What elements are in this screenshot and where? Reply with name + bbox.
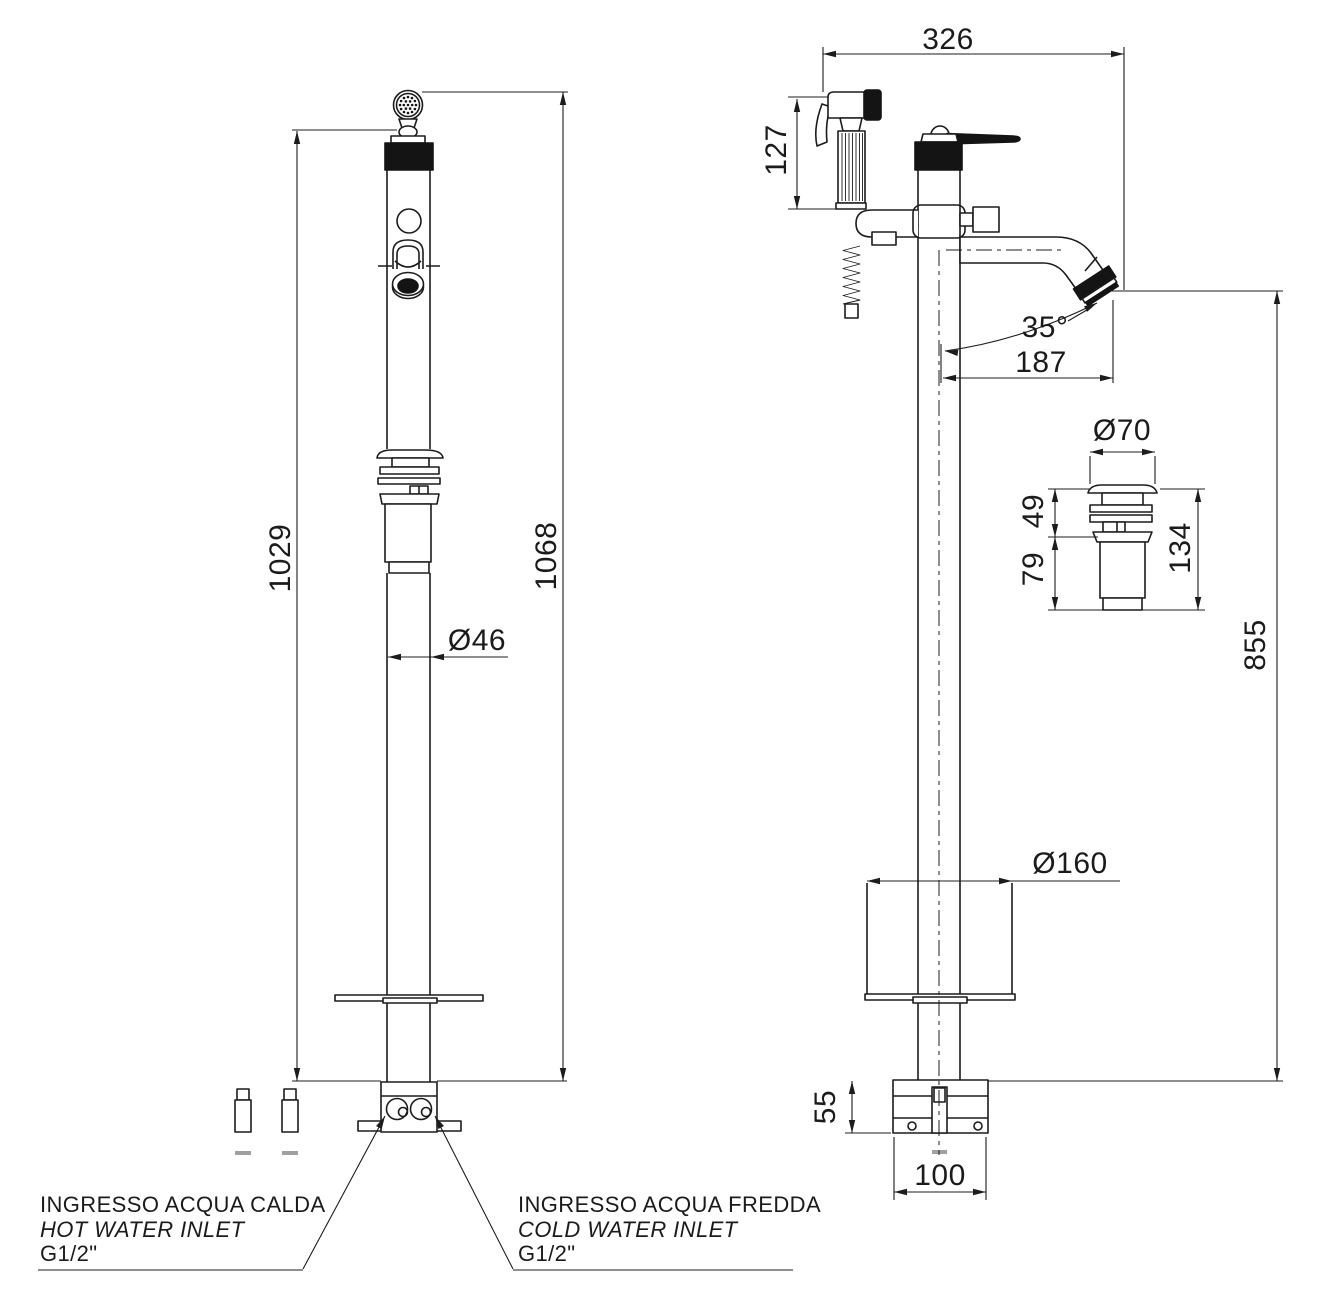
dimension-lines — [38, 47, 1283, 1270]
cold-water-inlet-label: INGRESSO ACQUA FREDDA COLD WATER INLET G… — [518, 1193, 821, 1267]
cold-label-thread: G1/2" — [518, 1242, 821, 1267]
side-view — [816, 90, 1121, 1155]
dim-drain-total-height: 134 — [1164, 522, 1198, 574]
diverter-front — [397, 209, 421, 233]
dim-spout-angle: 35° — [1022, 311, 1069, 345]
flex-hose-coil — [843, 246, 860, 304]
cold-label-english: COLD WATER INLET — [518, 1218, 821, 1243]
dim-drain-top-height: 49 — [1017, 494, 1051, 528]
dim-front-height-total: 1068 — [530, 522, 564, 591]
dim-side-width: 326 — [922, 23, 974, 57]
popup-waste-front — [377, 450, 443, 573]
dim-spout-reach: 187 — [1015, 346, 1067, 380]
knurled-collar-front — [385, 143, 433, 170]
dim-spout-height-floor: 855 — [1239, 619, 1273, 671]
cold-label-italian: INGRESSO ACQUA FREDDA — [518, 1193, 821, 1218]
dim-drain-cap-diameter: Ø70 — [1093, 414, 1151, 448]
dim-base-height: 55 — [809, 1090, 843, 1124]
knurled-collar-side — [915, 142, 962, 170]
base-block-side — [893, 1080, 988, 1154]
dim-base-cover-diameter: Ø160 — [1032, 847, 1107, 881]
spout-front — [393, 240, 424, 299]
handspray-side — [816, 90, 881, 209]
drawing-linework — [0, 0, 1324, 1304]
drain-detail — [1088, 485, 1157, 610]
dim-front-height-spray: 1029 — [264, 524, 298, 593]
technical-drawing: 326 1029 1068 Ø46 127 35° 187 Ø70 49 79 … — [0, 0, 1324, 1304]
dim-drain-bottom-height: 79 — [1017, 552, 1051, 586]
hot-water-inlet-label: INGRESSO ACQUA CALDA HOT WATER INLET G1/… — [40, 1193, 326, 1267]
dim-column-diameter: Ø46 — [448, 624, 506, 658]
hot-label-english: HOT WATER INLET — [40, 1218, 326, 1243]
front-view — [235, 91, 483, 1156]
hot-label-thread: G1/2" — [40, 1242, 326, 1267]
dim-handspray-height: 127 — [760, 124, 794, 176]
connection-fittings — [235, 1089, 298, 1155]
dim-base-width: 100 — [914, 1159, 966, 1193]
diverter-knob — [973, 207, 999, 232]
hot-label-italian: INGRESSO ACQUA CALDA — [40, 1193, 326, 1218]
